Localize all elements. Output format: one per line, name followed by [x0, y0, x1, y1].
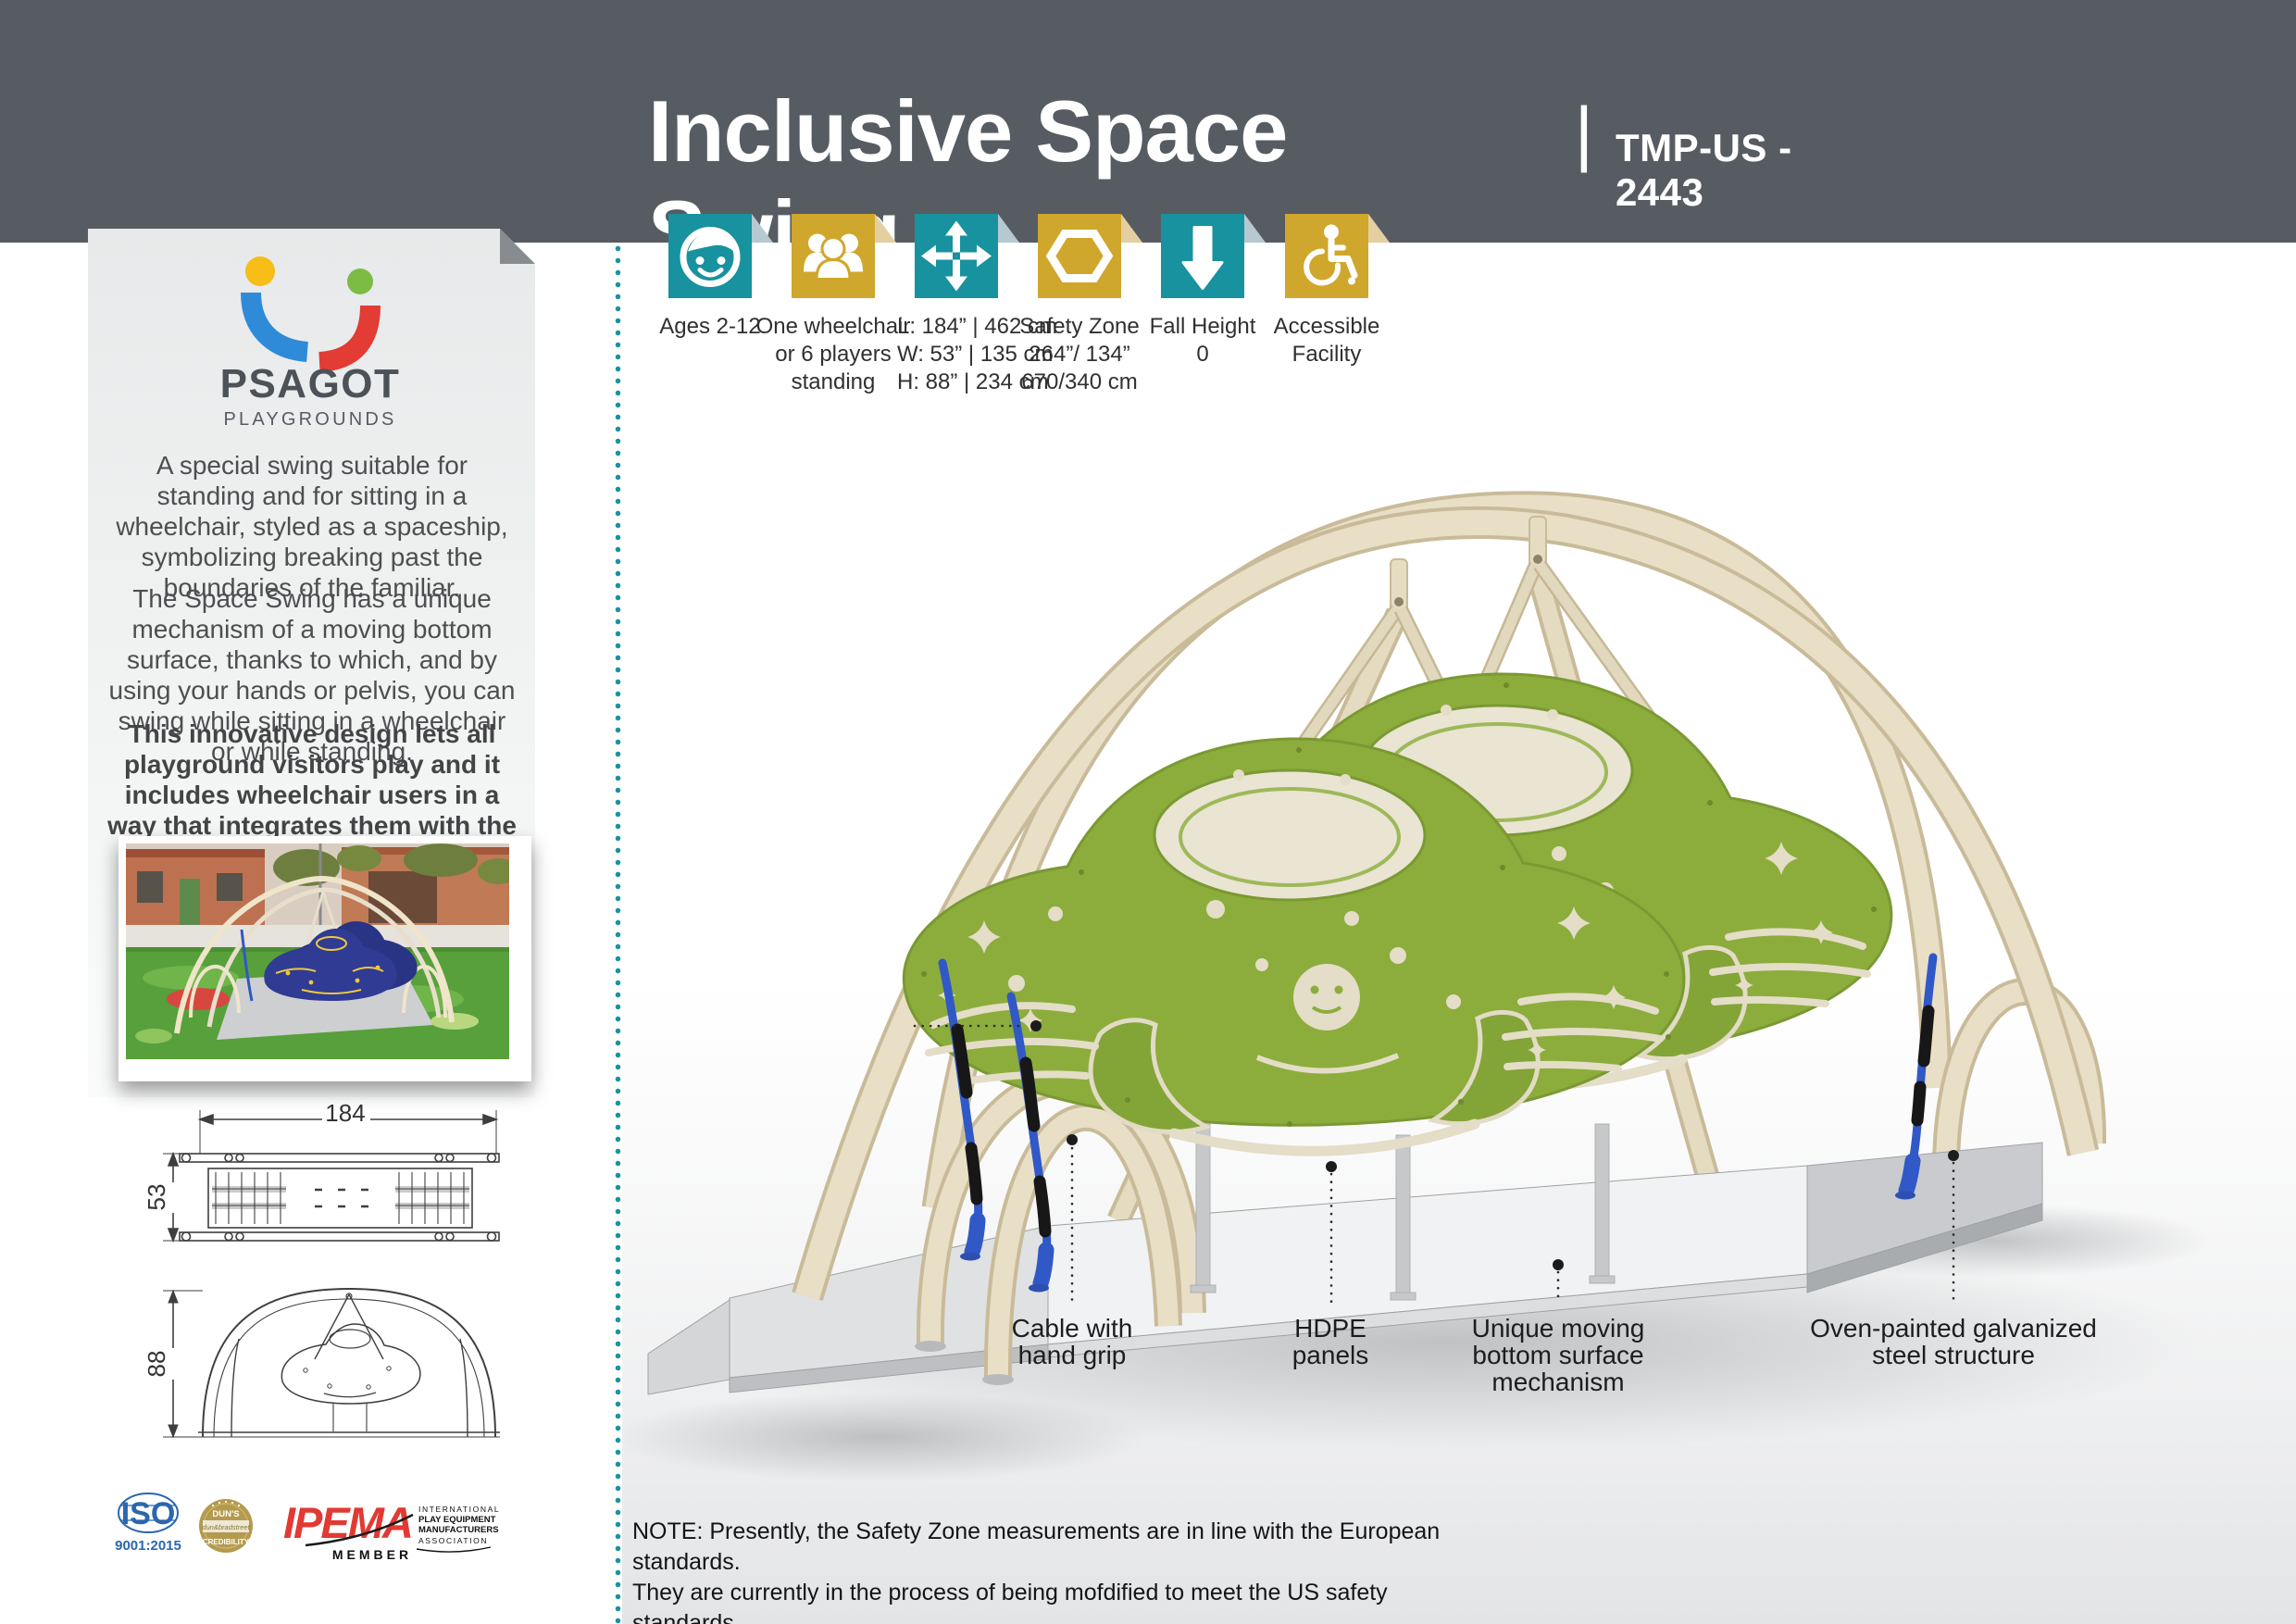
logo-red-arc: [319, 306, 370, 362]
iso-logo: ISO 9001:2015: [115, 1493, 181, 1554]
svg-text:DUN'S: DUN'S: [212, 1509, 239, 1519]
dim-width-label: 53: [143, 1184, 170, 1211]
svg-text:INTERNATIONAL: INTERNATIONAL: [418, 1505, 500, 1514]
logo-green-dot: [347, 269, 373, 294]
photo-scene: [126, 843, 509, 1059]
svg-text:IPEMA: IPEMA: [283, 1498, 412, 1547]
svg-text:MANUFACTURERS: MANUFACTURERS: [418, 1525, 499, 1535]
psagot-logo: PSAGOT PLAYGROUNDS: [88, 236, 535, 440]
front-view-drawing: [163, 1289, 500, 1437]
description-paragraph-1: A special swing suitable for standing an…: [105, 450, 519, 603]
certification-logos: ISO 9001:2015 DUN'S dun&bradstreet CREDI…: [88, 1477, 555, 1597]
page-title: Inclusive Space Swing | TMP-US - 2443: [648, 81, 1889, 202]
safety-note: NOTE: Presently, the Safety Zone measure…: [632, 1517, 1466, 1624]
svg-text:MEMBER: MEMBER: [332, 1547, 412, 1562]
svg-text:CREDIBILITY: CREDIBILITY: [203, 1538, 250, 1546]
svg-text:9001:2015: 9001:2015: [115, 1538, 181, 1554]
ipema-logo: IPEMA MEMBER INTERNATIONAL PLAY EQUIPMEN…: [283, 1498, 500, 1562]
product-code: TMP-US - 2443: [1616, 126, 1889, 215]
brand-name: PSAGOT: [220, 361, 401, 406]
svg-text:ASSOCIATION: ASSOCIATION: [418, 1536, 488, 1545]
title-divider: |: [1575, 91, 1593, 175]
svg-text:PLAY EQUIPMENT: PLAY EQUIPMENT: [418, 1515, 496, 1525]
dim-height-label: 88: [143, 1351, 170, 1378]
logo-yellow-dot: [245, 256, 275, 286]
top-view-drawing: [163, 1110, 499, 1241]
dim-length-label: 184: [325, 1099, 365, 1127]
product-render: [622, 243, 2296, 1624]
dimension-drawings: 184 53 88: [88, 1097, 555, 1468]
dotted-divider: [615, 243, 621, 1624]
annotation-mechanism: Unique moving bottom surface mechanism: [1401, 1315, 1716, 1395]
svg-text:dun&bradstreet: dun&bradstreet: [202, 1523, 250, 1531]
duns-badge: DUN'S dun&bradstreet CREDIBILITY: [199, 1499, 253, 1553]
annotation-steel: Oven-painted galvanized steel structure: [1796, 1315, 2111, 1368]
svg-text:ISO: ISO: [121, 1496, 176, 1531]
datasheet-page: Inclusive Space Swing | TMP-US - 2443 Ag…: [0, 0, 2296, 1624]
installation-photo: [119, 836, 531, 1081]
logo-blue-arc: [251, 293, 307, 352]
brand-tagline: PLAYGROUNDS: [223, 409, 396, 430]
